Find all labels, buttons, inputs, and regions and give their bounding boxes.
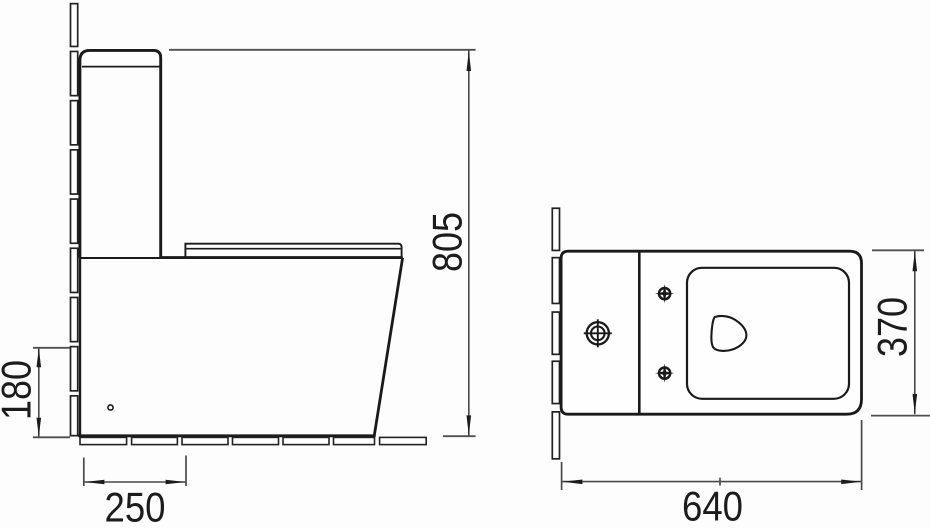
svg-text:180: 180 bbox=[0, 360, 39, 420]
svg-text:805: 805 bbox=[424, 212, 471, 272]
svg-text:370: 370 bbox=[868, 297, 915, 357]
svg-text:250: 250 bbox=[105, 484, 166, 528]
svg-text:640: 640 bbox=[682, 483, 743, 528]
